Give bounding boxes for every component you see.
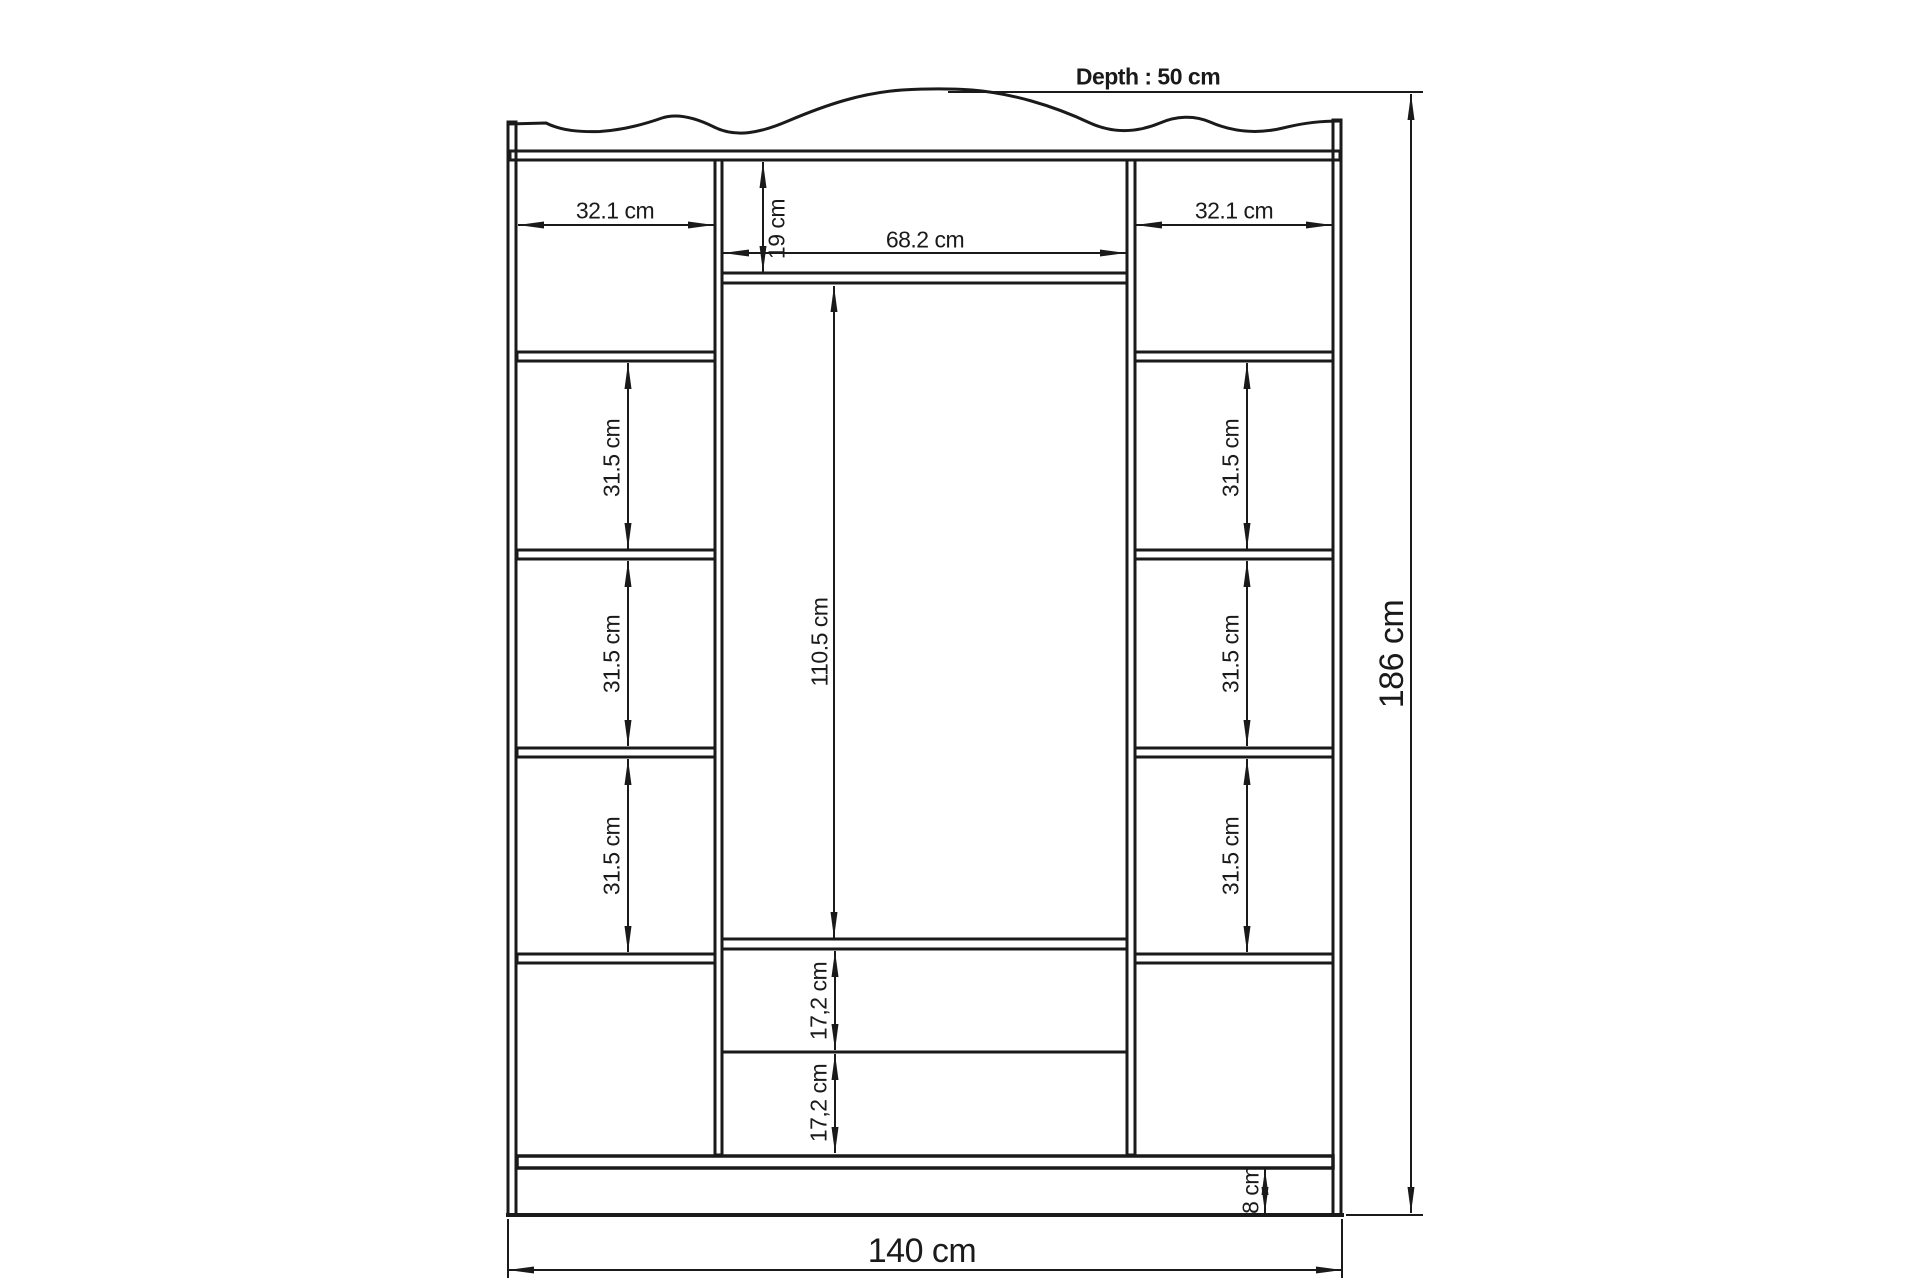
dim-label-side-width-right: 32.1 cm xyxy=(1195,200,1273,223)
right-shelf-2 xyxy=(1135,550,1333,559)
left-shelf-4 xyxy=(517,954,715,963)
right-shelf-1 xyxy=(1135,352,1333,361)
dim-label-total-height: 186 cm xyxy=(1375,600,1409,709)
dim-label-shelf-gap-right-3: 31.5 cm xyxy=(1220,817,1243,895)
left-shelf-2 xyxy=(517,550,715,559)
wardrobe-dimension-diagram: Depth : 50 cm 32.1 cm 32.1 cm 68.2 cm 19… xyxy=(0,0,1920,1280)
right-shelf-4 xyxy=(1135,954,1333,963)
depth-label: Depth : 50 cm xyxy=(1076,66,1220,89)
top-panel xyxy=(510,151,1340,160)
dim-label-base-height: 8 cm xyxy=(1240,1166,1263,1214)
dim-label-shelf-gap-right-1: 31.5 cm xyxy=(1220,419,1243,497)
bottom-shelf xyxy=(517,1156,1333,1168)
dim-label-side-width-left: 32.1 cm xyxy=(576,200,654,223)
dim-label-total-width: 140 cm xyxy=(868,1234,977,1268)
dim-label-drawer-gap-2: 17,2 cm xyxy=(808,1064,831,1142)
dim-label-shelf-gap-right-2: 31.5 cm xyxy=(1220,615,1243,693)
line-work xyxy=(506,89,1423,1278)
center-mid-shelf xyxy=(722,939,1127,949)
dim-label-middle-height: 110.5 cm xyxy=(809,598,832,687)
center-top-shelf xyxy=(722,273,1127,283)
dim-label-shelf-gap-left-1: 31.5 cm xyxy=(601,419,624,497)
dim-label-shelf-gap-left-3: 31.5 cm xyxy=(601,817,624,895)
right-shelf-3 xyxy=(1135,748,1333,757)
dim-label-top-gap: 19 cm xyxy=(766,199,789,259)
crown-molding xyxy=(508,89,1341,133)
left-shelf-1 xyxy=(517,352,715,361)
dim-label-drawer-gap-1: 17,2 cm xyxy=(808,962,831,1040)
left-shelf-3 xyxy=(517,748,715,757)
dim-label-center-width: 68.2 cm xyxy=(886,229,964,252)
dim-label-shelf-gap-left-2: 31.5 cm xyxy=(601,615,624,693)
divider-right xyxy=(1127,160,1135,1155)
left-side-panel xyxy=(508,122,516,1215)
drawing-canvas xyxy=(0,0,1920,1280)
divider-left xyxy=(715,160,722,1155)
right-side-panel xyxy=(1333,120,1341,1215)
